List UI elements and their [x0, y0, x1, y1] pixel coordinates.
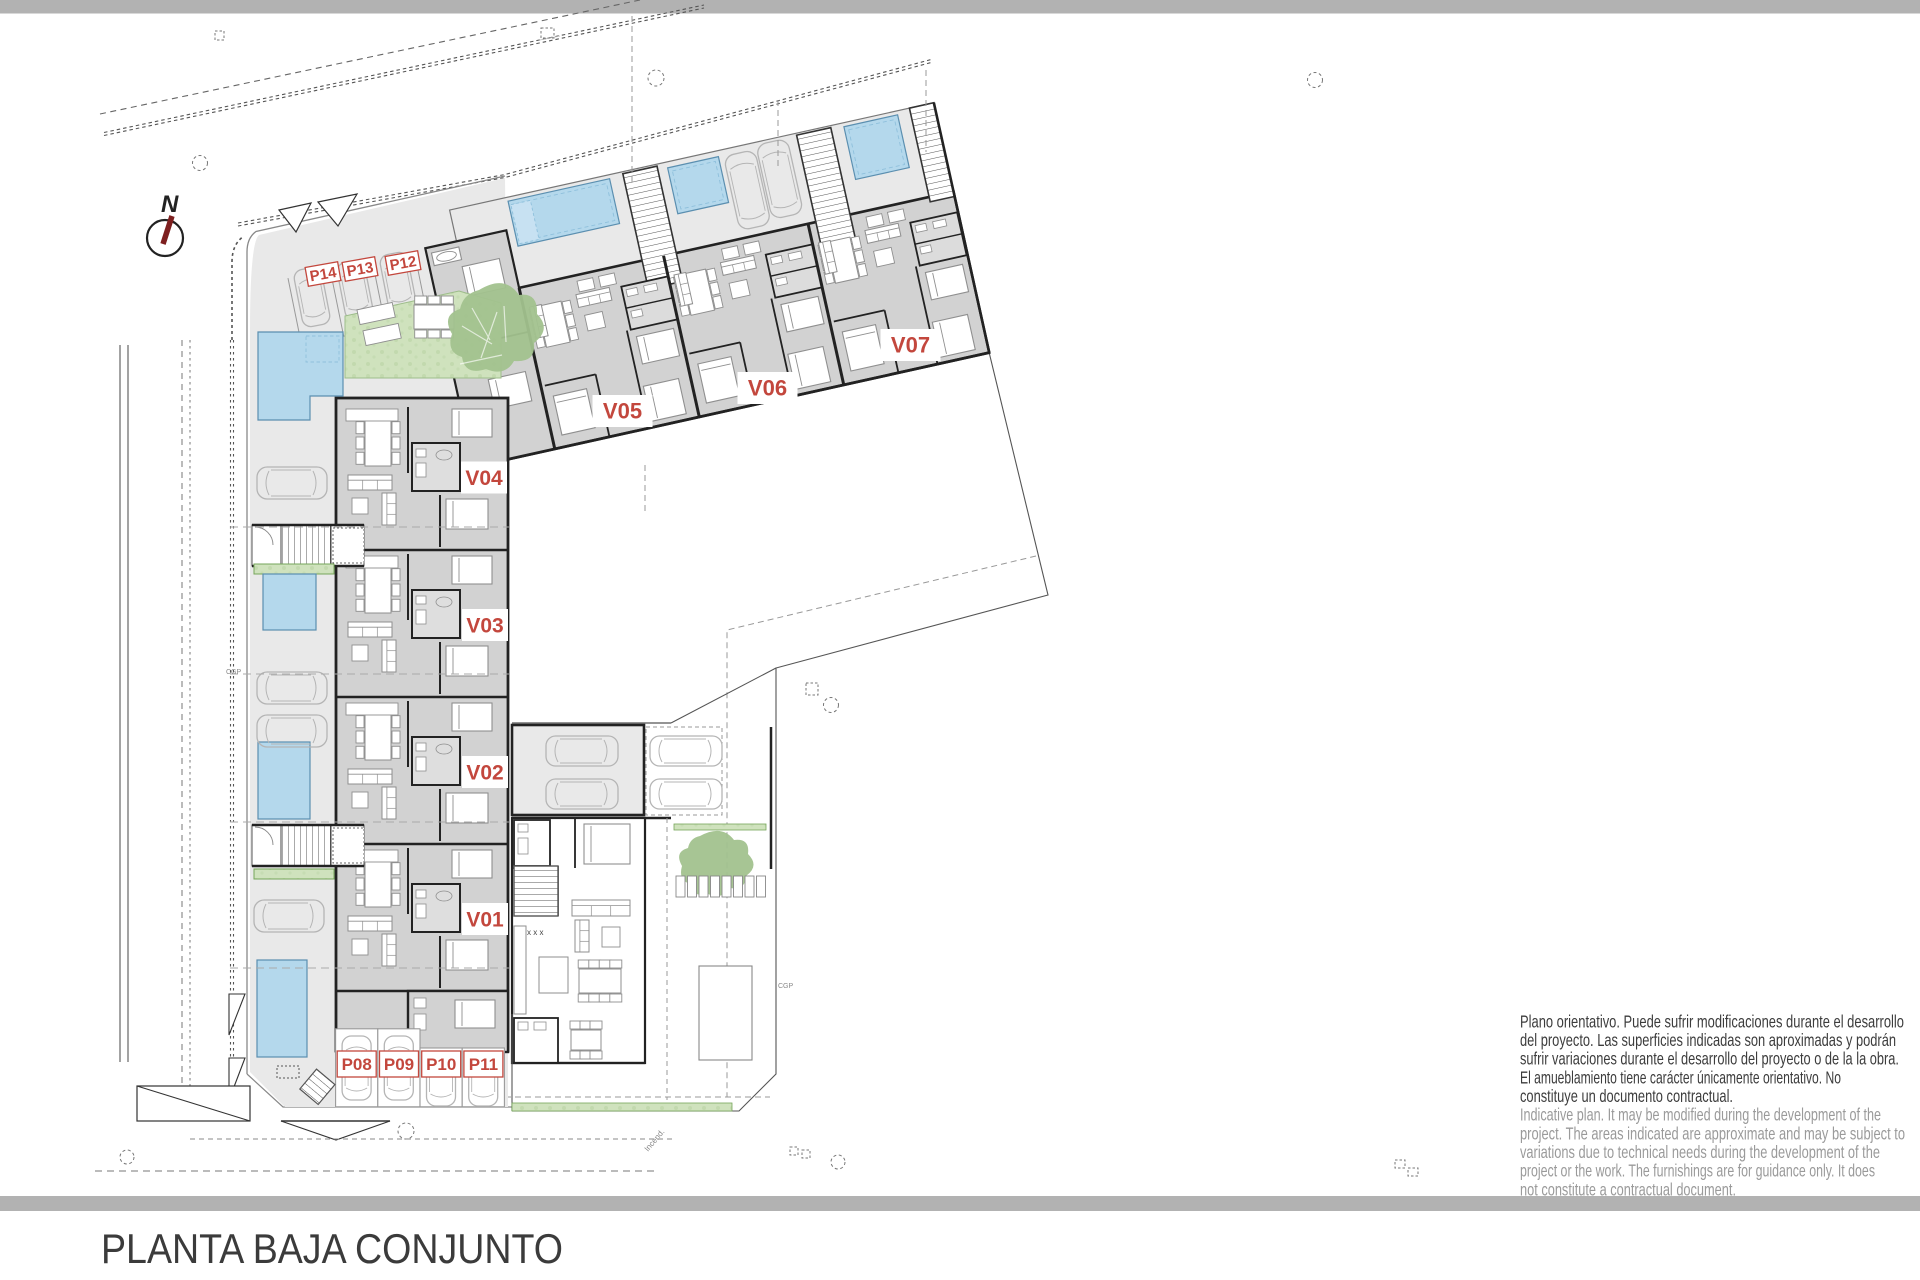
svg-text:not constitute a contractual d: not constitute a contractual document. — [1520, 1179, 1736, 1199]
svg-text:V04: V04 — [465, 467, 503, 490]
svg-text:V07: V07 — [891, 333, 930, 358]
svg-text:Indicative plan. It may be mod: Indicative plan. It may be modified duri… — [1520, 1105, 1881, 1125]
svg-text:P11: P11 — [469, 1055, 498, 1074]
svg-text:El amueblamiento tiene carácte: El amueblamiento tiene carácter únicamen… — [1520, 1067, 1841, 1087]
svg-text:CGP: CGP — [226, 669, 242, 676]
svg-text:P08: P08 — [342, 1055, 372, 1074]
svg-text:V06: V06 — [748, 376, 787, 401]
svg-text:project or the work. The furni: project or the work. The furnishings are… — [1520, 1161, 1875, 1181]
svg-text:CGP: CGP — [778, 983, 794, 990]
svg-text:x x x: x x x — [527, 928, 543, 937]
svg-text:project. The areas indicated a: project. The areas indicated are approxi… — [1520, 1123, 1905, 1143]
svg-text:V05: V05 — [603, 399, 642, 424]
svg-text:V02: V02 — [466, 761, 503, 784]
svg-text:P09: P09 — [384, 1055, 414, 1074]
svg-text:V03: V03 — [466, 614, 503, 637]
svg-text:sufrir variaciones durante el: sufrir variaciones durante el desarrollo… — [1520, 1049, 1899, 1069]
svg-text:del proyecto. Las superficies: del proyecto. Las superficies indicadas … — [1520, 1030, 1896, 1050]
svg-text:constituye un documento contra: constituye un documento contractual. — [1520, 1086, 1733, 1106]
svg-text:P10: P10 — [426, 1055, 456, 1074]
svg-text:V01: V01 — [466, 908, 504, 931]
svg-text:Plano orientativo. Puede sufri: Plano orientativo. Puede sufrir modifica… — [1520, 1011, 1904, 1031]
svg-text:N: N — [161, 191, 179, 218]
svg-text:variations due to technical ne: variations due to technical needs during… — [1520, 1142, 1880, 1162]
svg-text:PLANTA BAJA CONJUNTO: PLANTA BAJA CONJUNTO — [101, 1225, 563, 1272]
